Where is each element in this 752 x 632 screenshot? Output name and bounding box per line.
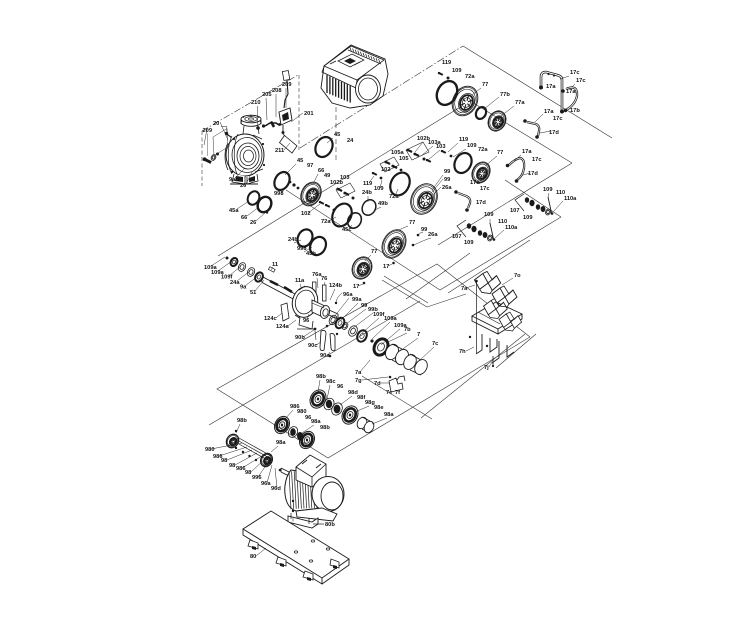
svg-text:201: 201 bbox=[304, 111, 314, 117]
svg-text:980: 980 bbox=[205, 447, 215, 453]
svg-text:24: 24 bbox=[347, 138, 354, 144]
svg-text:99: 99 bbox=[444, 177, 450, 183]
svg-text:45a: 45a bbox=[229, 208, 239, 214]
svg-text:77: 77 bbox=[482, 82, 488, 88]
svg-text:90b: 90b bbox=[295, 335, 305, 341]
svg-text:66: 66 bbox=[241, 215, 247, 221]
svg-text:98a: 98a bbox=[276, 440, 286, 446]
svg-text:96a: 96a bbox=[261, 481, 271, 487]
svg-text:17c: 17c bbox=[480, 186, 490, 192]
svg-text:109: 109 bbox=[374, 186, 384, 192]
svg-text:20: 20 bbox=[213, 121, 219, 127]
svg-text:96: 96 bbox=[303, 318, 309, 324]
svg-text:107: 107 bbox=[452, 234, 462, 240]
svg-text:210: 210 bbox=[251, 100, 261, 106]
svg-text:205: 205 bbox=[262, 92, 272, 98]
svg-text:110a: 110a bbox=[505, 225, 518, 231]
svg-text:7f: 7f bbox=[395, 390, 400, 396]
svg-text:98b: 98b bbox=[316, 374, 326, 380]
svg-text:7c: 7c bbox=[432, 341, 438, 347]
svg-text:26a: 26a bbox=[428, 232, 438, 238]
svg-text:124b: 124b bbox=[329, 283, 342, 289]
svg-text:211: 211 bbox=[275, 148, 284, 154]
svg-text:7d: 7d bbox=[374, 381, 381, 387]
svg-text:77: 77 bbox=[497, 150, 503, 156]
svg-text:124c: 124c bbox=[264, 316, 277, 322]
svg-text:77: 77 bbox=[409, 220, 415, 226]
svg-text:80b: 80b bbox=[325, 522, 335, 528]
svg-text:209: 209 bbox=[282, 82, 292, 88]
svg-text:11a: 11a bbox=[295, 278, 305, 284]
svg-text:72a: 72a bbox=[321, 219, 331, 225]
svg-text:107: 107 bbox=[510, 208, 520, 214]
svg-text:80: 80 bbox=[250, 554, 256, 560]
svg-text:109: 109 bbox=[464, 240, 474, 246]
svg-text:17c: 17c bbox=[570, 70, 580, 76]
svg-text:17d: 17d bbox=[476, 200, 486, 206]
svg-text:109: 109 bbox=[452, 68, 462, 74]
svg-text:7j: 7j bbox=[484, 365, 489, 371]
svg-text:103: 103 bbox=[436, 144, 446, 150]
svg-text:7h: 7h bbox=[459, 349, 466, 355]
svg-text:98b: 98b bbox=[320, 425, 330, 431]
svg-text:17b: 17b bbox=[570, 108, 580, 114]
svg-text:77a: 77a bbox=[515, 100, 525, 106]
svg-text:49b: 49b bbox=[378, 201, 388, 207]
svg-text:109: 109 bbox=[484, 212, 494, 218]
svg-text:7b: 7b bbox=[404, 327, 411, 333]
svg-text:208: 208 bbox=[272, 88, 282, 94]
svg-text:119: 119 bbox=[442, 60, 451, 66]
svg-text:45b: 45b bbox=[306, 251, 316, 257]
svg-text:98: 98 bbox=[245, 470, 251, 476]
svg-text:17d: 17d bbox=[528, 171, 538, 177]
svg-text:109: 109 bbox=[543, 187, 553, 193]
svg-text:90c: 90c bbox=[308, 343, 318, 349]
svg-text:77b: 77b bbox=[500, 92, 510, 98]
svg-text:17c: 17c bbox=[553, 116, 563, 122]
svg-text:102: 102 bbox=[381, 167, 391, 173]
svg-text:17: 17 bbox=[353, 284, 359, 290]
svg-text:24b: 24b bbox=[288, 237, 298, 243]
svg-text:109: 109 bbox=[523, 215, 533, 221]
svg-text:24a: 24a bbox=[230, 280, 240, 286]
svg-text:7o: 7o bbox=[514, 273, 521, 279]
svg-text:17: 17 bbox=[383, 264, 389, 270]
svg-text:26: 26 bbox=[240, 183, 246, 189]
svg-text:124a: 124a bbox=[276, 324, 289, 330]
svg-text:105: 105 bbox=[399, 156, 409, 162]
svg-text:49: 49 bbox=[324, 173, 330, 179]
svg-text:98c: 98c bbox=[326, 379, 336, 385]
svg-text:26a: 26a bbox=[442, 185, 452, 191]
svg-text:97: 97 bbox=[307, 163, 313, 169]
svg-text:72a: 72a bbox=[465, 74, 475, 80]
svg-text:26: 26 bbox=[250, 220, 256, 226]
svg-text:98: 98 bbox=[229, 463, 235, 469]
svg-text:99: 99 bbox=[444, 169, 450, 175]
svg-text:7e: 7e bbox=[386, 390, 392, 396]
svg-text:45: 45 bbox=[334, 132, 340, 138]
svg-text:76: 76 bbox=[321, 276, 327, 282]
svg-text:7g: 7g bbox=[355, 378, 362, 384]
svg-text:98b: 98b bbox=[237, 418, 247, 424]
svg-text:119: 119 bbox=[363, 181, 372, 187]
svg-text:24b: 24b bbox=[362, 190, 372, 196]
svg-text:109a: 109a bbox=[384, 316, 397, 322]
svg-text:17c: 17c bbox=[532, 157, 542, 163]
svg-text:103: 103 bbox=[340, 175, 350, 181]
svg-text:209: 209 bbox=[203, 128, 213, 134]
svg-text:98e: 98e bbox=[374, 405, 384, 411]
svg-text:17a: 17a bbox=[470, 180, 480, 186]
svg-text:96: 96 bbox=[337, 384, 343, 390]
svg-text:77: 77 bbox=[371, 249, 377, 255]
svg-text:17c: 17c bbox=[576, 78, 586, 84]
svg-text:17a: 17a bbox=[546, 84, 556, 90]
svg-text:110a: 110a bbox=[564, 196, 577, 202]
svg-text:109: 109 bbox=[467, 143, 477, 149]
svg-text:98: 98 bbox=[221, 458, 227, 464]
svg-text:7a: 7a bbox=[461, 286, 468, 292]
svg-text:96d: 96d bbox=[271, 486, 281, 492]
svg-text:72a: 72a bbox=[478, 147, 488, 153]
svg-text:17a: 17a bbox=[566, 89, 576, 95]
svg-text:72a: 72a bbox=[389, 194, 399, 200]
svg-text:98a: 98a bbox=[384, 412, 394, 418]
svg-text:45: 45 bbox=[297, 158, 303, 164]
svg-text:109f: 109f bbox=[373, 312, 384, 318]
svg-text:99: 99 bbox=[361, 303, 367, 309]
svg-text:7: 7 bbox=[417, 332, 420, 338]
svg-text:17a: 17a bbox=[544, 109, 554, 115]
svg-text:17a: 17a bbox=[522, 149, 532, 155]
